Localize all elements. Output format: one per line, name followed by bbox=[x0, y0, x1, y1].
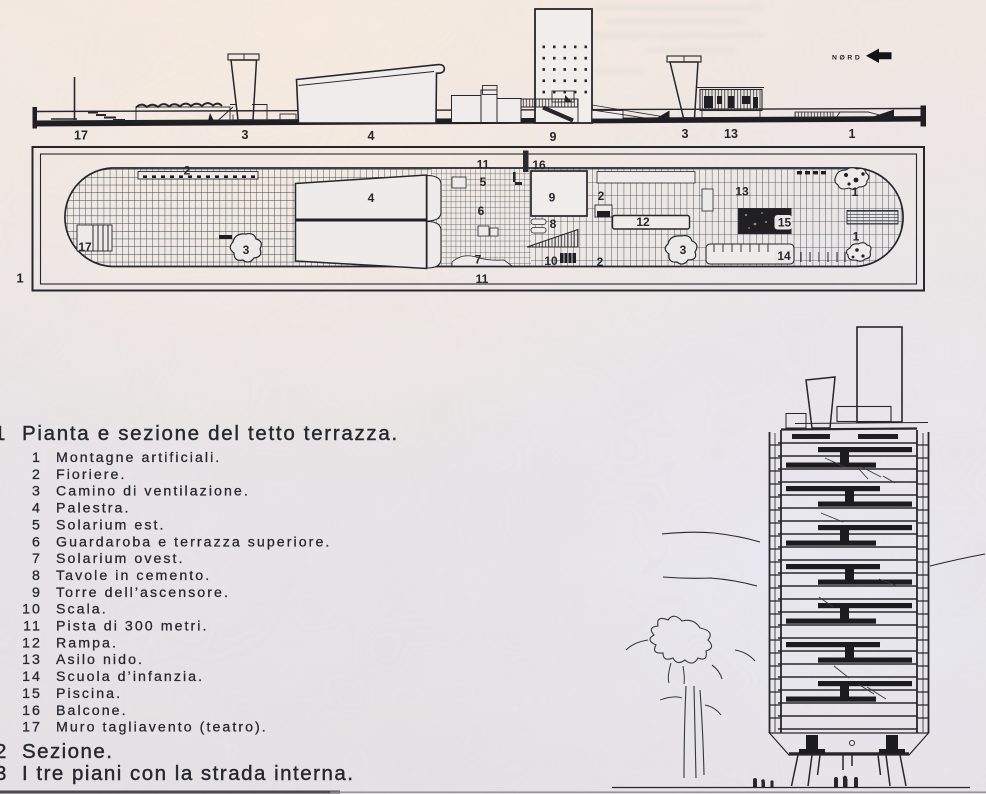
svg-text:5: 5 bbox=[32, 517, 42, 533]
svg-text:7: 7 bbox=[475, 253, 482, 267]
svg-text:3: 3 bbox=[243, 243, 250, 257]
svg-text:Pista di 300 metri.: Pista di 300 metri. bbox=[56, 619, 209, 635]
svg-text:Solarium ovest.: Solarium ovest. bbox=[56, 551, 185, 567]
svg-text:Camino di ventilazione.: Camino di ventilazione. bbox=[56, 484, 250, 500]
svg-text:16: 16 bbox=[22, 703, 42, 719]
svg-text:5: 5 bbox=[480, 175, 487, 189]
svg-text:2: 2 bbox=[0, 740, 8, 763]
svg-text:Montagne artificiali.: Montagne artificiali. bbox=[56, 450, 221, 466]
svg-text:3: 3 bbox=[242, 128, 249, 142]
svg-text:NØRD: NØRD bbox=[832, 55, 862, 62]
svg-text:3: 3 bbox=[0, 762, 8, 785]
svg-text:2: 2 bbox=[184, 164, 191, 178]
svg-text:14: 14 bbox=[777, 249, 791, 263]
svg-text:3: 3 bbox=[682, 127, 689, 141]
svg-text:16: 16 bbox=[532, 158, 546, 172]
svg-text:Sezione.: Sezione. bbox=[22, 740, 113, 763]
svg-text:6: 6 bbox=[32, 534, 42, 550]
svg-text:10: 10 bbox=[22, 602, 42, 618]
svg-text:13: 13 bbox=[735, 185, 749, 199]
svg-text:8: 8 bbox=[550, 217, 557, 231]
svg-text:Muro tagliavento (teatro).: Muro tagliavento (teatro). bbox=[56, 720, 268, 736]
svg-text:11: 11 bbox=[477, 158, 490, 172]
svg-text:Rampa.: Rampa. bbox=[56, 635, 118, 651]
svg-text:4: 4 bbox=[32, 501, 42, 517]
svg-text:4: 4 bbox=[368, 191, 375, 205]
svg-text:17: 17 bbox=[74, 129, 88, 143]
svg-text:1: 1 bbox=[849, 127, 856, 141]
svg-text:Scuola d’infanzia.: Scuola d’infanzia. bbox=[56, 669, 204, 685]
svg-text:11: 11 bbox=[476, 272, 489, 286]
svg-text:1: 1 bbox=[852, 185, 859, 199]
svg-text:2: 2 bbox=[32, 467, 42, 483]
svg-text:Torre dell’ascensore.: Torre dell’ascensore. bbox=[56, 585, 230, 601]
svg-text:2: 2 bbox=[598, 189, 605, 203]
svg-text:1: 1 bbox=[0, 422, 7, 445]
svg-text:8: 8 bbox=[32, 568, 42, 584]
svg-text:Balcone.: Balcone. bbox=[56, 703, 128, 719]
svg-text:9: 9 bbox=[550, 130, 557, 144]
svg-text:1: 1 bbox=[16, 271, 23, 286]
svg-text:9: 9 bbox=[549, 191, 556, 205]
svg-text:Scala.: Scala. bbox=[56, 602, 108, 618]
svg-text:6: 6 bbox=[478, 204, 485, 218]
svg-text:Guardaroba e terrazza superior: Guardaroba e terrazza superiore. bbox=[56, 534, 331, 550]
svg-text:17: 17 bbox=[22, 720, 42, 736]
svg-text:Piscina.: Piscina. bbox=[56, 686, 122, 702]
svg-text:12: 12 bbox=[22, 635, 42, 651]
svg-text:Solarium est.: Solarium est. bbox=[56, 517, 165, 533]
svg-text:15: 15 bbox=[778, 216, 792, 230]
svg-text:17: 17 bbox=[78, 240, 92, 254]
svg-text:10: 10 bbox=[544, 254, 558, 268]
svg-text:12: 12 bbox=[636, 215, 650, 229]
svg-text:1: 1 bbox=[32, 450, 42, 466]
svg-text:14: 14 bbox=[22, 669, 42, 685]
svg-text:Tavole in cemento.: Tavole in cemento. bbox=[56, 568, 211, 584]
svg-text:3: 3 bbox=[32, 484, 42, 500]
svg-text:1: 1 bbox=[853, 230, 860, 244]
svg-text:I tre piani con la strada inte: I tre piani con la strada interna. bbox=[22, 762, 354, 785]
svg-text:7: 7 bbox=[32, 551, 42, 567]
svg-text:13: 13 bbox=[22, 652, 42, 668]
svg-text:4: 4 bbox=[368, 129, 375, 143]
svg-text:13: 13 bbox=[724, 127, 738, 141]
svg-text:2: 2 bbox=[597, 255, 604, 269]
svg-text:3: 3 bbox=[680, 243, 687, 257]
svg-text:Fioriere.: Fioriere. bbox=[56, 467, 126, 483]
svg-text:Asilo nido.: Asilo nido. bbox=[56, 652, 144, 668]
svg-text:9: 9 bbox=[32, 585, 42, 601]
svg-text:15: 15 bbox=[22, 686, 42, 702]
svg-text:Palestra.: Palestra. bbox=[56, 501, 130, 517]
svg-text:11: 11 bbox=[23, 619, 42, 635]
svg-text:Pianta e sezione del tetto ter: Pianta e sezione del tetto terrazza. bbox=[22, 422, 399, 445]
